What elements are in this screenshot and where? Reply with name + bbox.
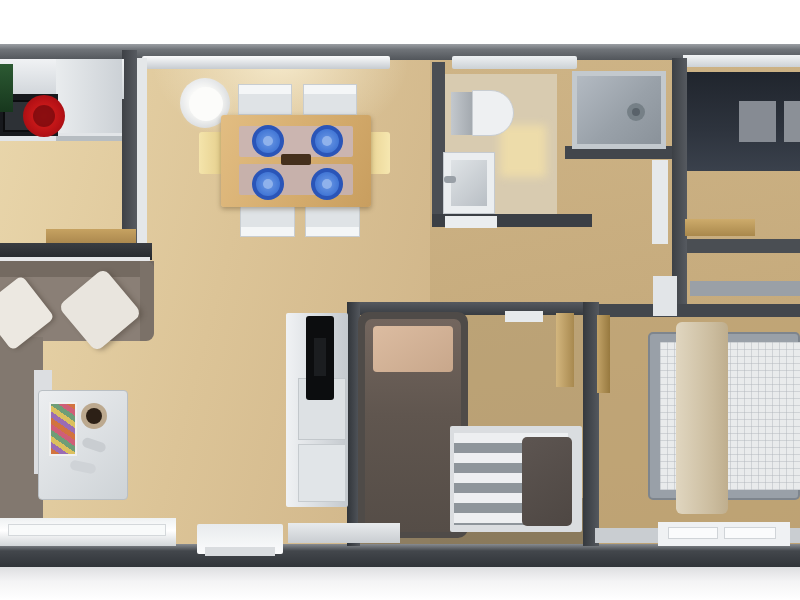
dining-chair-top-2 (303, 84, 357, 115)
window-top-dining (142, 56, 390, 69)
sill-kids-door (505, 311, 543, 322)
single-bed-pillow (373, 326, 453, 372)
trim-hall-white (653, 276, 677, 316)
floorplan-stage (0, 0, 800, 600)
wall-wardrobe-room-bottom (687, 239, 800, 253)
shower-drain-inner (632, 108, 640, 116)
kitchen-cabinet-column (56, 59, 122, 137)
window-top-bathroom (452, 56, 577, 69)
margin-top-white (0, 0, 800, 45)
sofa-armrest (140, 261, 154, 341)
sill-bathroom-door (445, 216, 497, 228)
window-top-wardrobe-room (683, 55, 800, 67)
table-centerpiece (281, 154, 311, 165)
striped-bed-pillow (522, 437, 572, 526)
cutting-board (0, 64, 13, 112)
bathroom-sink-faucet (444, 176, 456, 183)
plate-4-center (322, 179, 332, 189)
sofa-backrest (0, 261, 154, 277)
stove-burner-inner (33, 105, 55, 127)
wardrobe-panel-2 (784, 101, 800, 142)
coffee-cup (86, 408, 102, 424)
door-trim-kitchen (137, 58, 147, 256)
margin-bottom-white (0, 566, 800, 600)
wall-right-vertical (672, 58, 687, 310)
pendant-lamp-bulb (189, 87, 223, 121)
window-bottom-center (288, 523, 400, 543)
shelf-master-headboard (690, 281, 800, 296)
plate-2-center (322, 136, 332, 146)
door-wardrobe-room (652, 160, 668, 244)
dining-chair-bottom-2 (305, 202, 360, 237)
entry-door-step (205, 547, 275, 556)
wardrobe-panel-1 (739, 101, 776, 142)
window-bottom-master-pane-1 (668, 527, 718, 539)
bathroom-sink-basin (451, 160, 487, 206)
shower-tray (572, 71, 666, 149)
light-patch-bathroom (500, 125, 546, 177)
wall-master-top (591, 304, 800, 317)
tv-mount (314, 338, 326, 376)
master-bedroom-door (597, 315, 610, 393)
kids-room-door (556, 313, 574, 387)
dining-chair-top-1 (238, 84, 292, 115)
magazine (49, 402, 77, 456)
plate-3-center (263, 179, 273, 189)
wall-bottom-exterior (0, 544, 800, 567)
window-bottom-living-frame (8, 524, 166, 536)
tv-cabinet-drawer-2 (298, 444, 346, 502)
shelf-wardrobe-room (685, 219, 755, 236)
kitchen-shelf-shadow (56, 136, 122, 141)
wall-kitchen-dining (122, 50, 137, 254)
double-bed-blanket (676, 322, 728, 514)
window-bottom-master-pane-2 (724, 527, 776, 539)
plate-1-center (263, 136, 273, 146)
dining-chair-bottom-1 (240, 202, 295, 237)
